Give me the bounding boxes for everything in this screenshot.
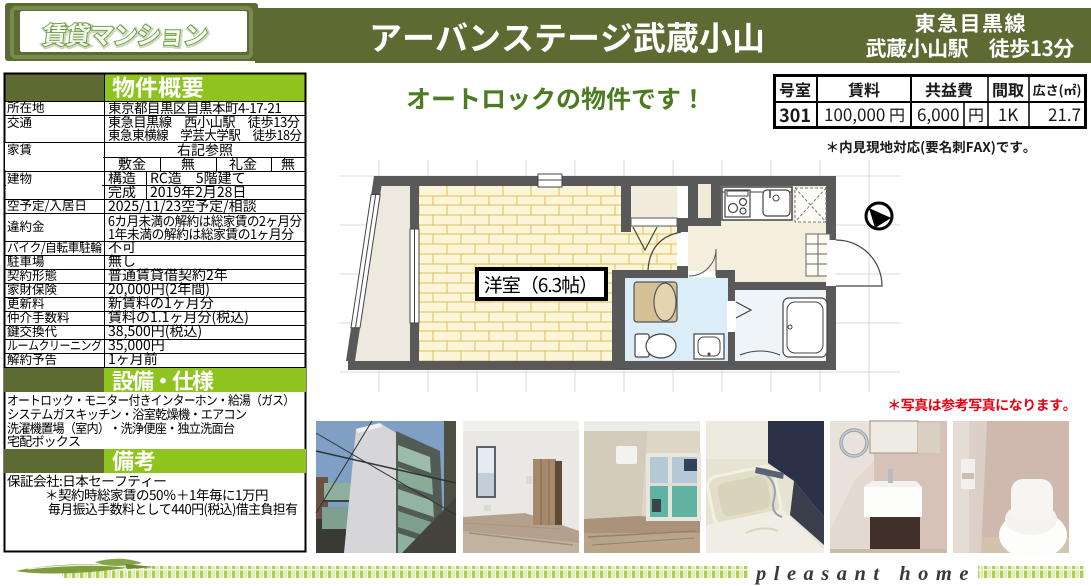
- svg-text:pleasant home: pleasant home: [754, 563, 976, 585]
